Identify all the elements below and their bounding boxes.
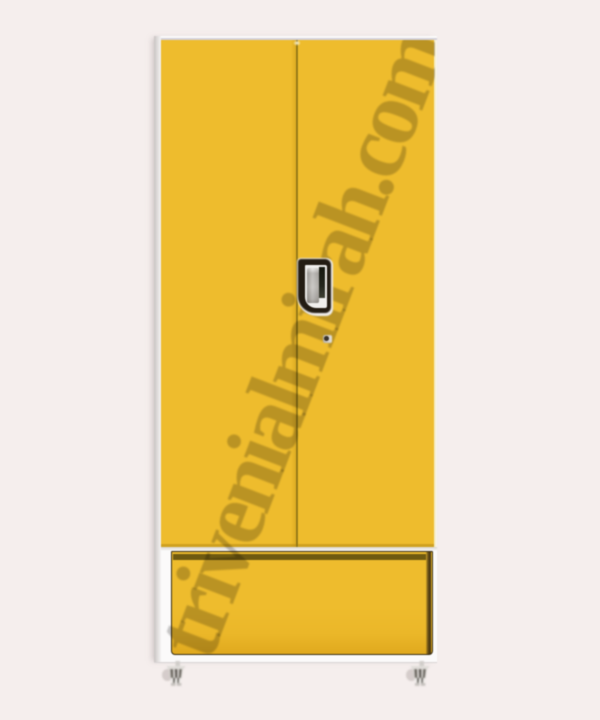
svg-text:trivenialmirah.com: trivenialmirah.com bbox=[150, 40, 435, 670]
